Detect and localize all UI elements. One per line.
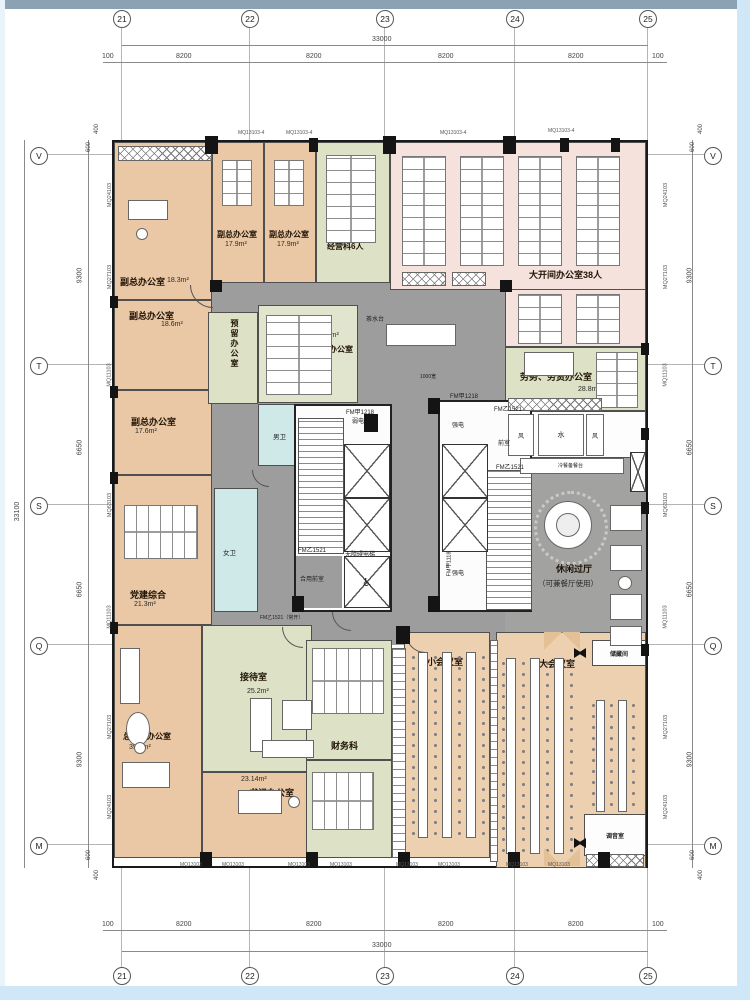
dim-edge: 100 [652,53,664,60]
movable-partition [490,640,498,862]
desk-cluster [274,160,304,206]
wall-code: MQ24103 [663,795,669,819]
column [396,626,410,644]
axis-bubble-22-top: 22 [241,10,259,28]
fire-door-label: FM乙1521 [494,404,522,413]
grid-line [47,844,112,845]
grid-line [647,27,648,140]
room-label: 党建综合 [130,588,166,601]
anteroom-label: 前室 [498,438,510,447]
sofa [610,545,642,571]
axis-bubble-24-top: 24 [506,10,524,28]
chair-row [568,658,573,854]
grid-line [648,644,704,645]
wall-code: MQ24103 [107,795,113,819]
dim-line [103,62,667,63]
chair [288,796,300,808]
room-label: 接待室 [240,670,267,683]
wall-code: MQ63103 [107,493,113,517]
column [598,852,610,868]
dim-edge: 600 [86,850,92,860]
room-vice-office-5: 副总办公室 17.6m² [114,390,212,475]
chair-row [630,700,635,812]
chair-row [480,652,486,838]
axis-bubble-25-bottom: 25 [639,967,657,985]
room-label: 储藏间 [610,649,628,658]
grid-line [121,868,122,967]
axis-bubble-S-left: S [30,497,48,515]
grid-line [47,154,112,155]
dim-edge: 400 [94,124,100,134]
room-label: 财务科 [331,739,358,752]
dim-line [122,951,648,952]
chair-row [590,700,595,812]
desk-cluster [326,155,376,243]
dim-line [103,930,667,931]
axis-bubble-21-bottom: 21 [113,967,131,985]
column [641,644,649,656]
desk-cluster [402,156,446,266]
room-area: 17.9m² [277,241,299,248]
dim-line [24,140,25,868]
dim-edge: 400 [94,870,100,880]
dim-line [88,140,89,868]
elevator-shaft [442,498,488,552]
tea-station-label: 茶水台 [366,314,384,323]
column [641,343,649,355]
column [500,280,512,292]
desk-cluster [576,294,620,344]
shaft-label: 水 [558,430,565,440]
dim-seg-left: 6650 [76,440,83,456]
axis-bubble-S-right: S [704,497,722,515]
column [210,280,222,292]
window-bench [402,272,446,286]
dim-edge: 100 [102,53,114,60]
room-label: 大开间办公室38人 [529,268,602,281]
desk [128,200,168,220]
right-frame-band [737,0,750,1000]
wall-code: MQ24103 [107,183,113,207]
column [428,596,440,612]
column [428,398,440,414]
dim-seg: 8200 [438,921,454,928]
wall-code: MQ13103 [396,862,418,868]
dim-edge: 400 [698,870,704,880]
wall-code: MQ13103 [506,862,528,868]
axis-bubble-Q-left: Q [30,637,48,655]
grid-line [249,868,250,967]
wall-code: MQ13103-4 [440,130,466,136]
axis-bubble-T-right: T [704,357,722,375]
dim-seg-left: 6650 [76,582,83,598]
dim-seg-left: 9300 [76,268,83,284]
axis-bubble-M-left: M [30,837,48,855]
dim-seg-left: 9300 [76,752,83,768]
dim-edge: 600 [86,142,92,152]
dim-seg: 8200 [568,53,584,60]
axis-bubble-21-top: 21 [113,10,131,28]
axis-bubble-Q-right: Q [704,637,722,655]
dim-edge: 600 [690,850,696,860]
wardrobe-cabinets [118,146,212,161]
room-area: 23.14m² [241,776,267,783]
axis-bubble-23-bottom: 23 [376,967,394,985]
room-label: 副总办公室 [269,229,309,240]
grid-line [249,27,250,140]
room-area: 17.6m² [135,428,157,435]
column [383,136,396,154]
axis-bubble-23-top: 23 [376,10,394,28]
grid-line [648,364,704,365]
desk-cluster [596,352,638,408]
width-note: 1000宽 [420,373,436,380]
dim-seg-right: 9300 [686,752,693,768]
fire-door-label: FM甲1118 [444,552,452,577]
top-frame-band [0,0,750,9]
room-vice-office-4: 副总办公室 18.6m² [114,300,212,390]
counter [586,854,644,867]
column [611,138,620,152]
elevator-shaft [442,444,488,498]
service-shaft [630,452,646,492]
desk-cluster [518,156,562,266]
grid-line [648,504,704,505]
room-sound-control: 调音室 [584,814,646,856]
dim-seg-right: 9300 [686,268,693,284]
conference-table [596,700,605,812]
dim-seg-right: 6650 [686,440,693,456]
wall-code: MQ27103 [663,715,669,739]
dim-seg: 8200 [438,53,454,60]
chair-row [608,700,613,812]
side-table [618,576,632,590]
desk-cluster [460,156,504,266]
tea-counter [386,324,456,346]
accessible-elevator: ♿ [344,556,390,608]
desk-cluster [266,315,332,395]
dim-edge: 600 [690,142,696,152]
room-area: 18.3m² [167,277,189,284]
axis-bubble-M-right: M [704,837,722,855]
dim-edge: 100 [652,921,664,928]
wall-code: MQ11103 [107,605,113,628]
conference-table [442,652,452,838]
sofa [610,626,642,646]
room-area: 18.6m² [161,321,183,328]
room-reserved-office: 预留办公室 [208,312,258,404]
grid-line [648,154,704,155]
axis-bubble-25-top: 25 [639,10,657,28]
chair-row [500,658,505,854]
grid-line [384,868,385,967]
floor-plan-sheet: 21 22 23 24 25 21 22 23 24 25 V T S Q M … [0,0,750,1000]
wall-code: MQ13103 [548,862,570,868]
buffet-counter-label: 冷餐备餐台 [558,462,583,469]
column [503,136,516,154]
accessible-elevator-label: 无障碍电梯 [345,549,375,558]
conference-table [554,658,564,854]
grid-line [514,27,515,140]
axis-bubble-24-bottom: 24 [506,967,524,985]
chair [136,228,148,240]
wall-code: MQ13103 [330,862,352,868]
conference-table [618,700,627,812]
dim-total-bottom: 33000 [372,942,391,949]
dim-seg: 8200 [176,921,192,928]
column [309,138,318,152]
column [560,138,569,152]
coffee-table [282,700,312,730]
room-area: 25.2m² [247,688,269,695]
meeting-table [124,505,198,559]
chair [134,742,146,754]
desk-cluster [312,648,384,714]
axis-bubble-V-right: V [704,147,722,165]
wall-code: MQ13103 [288,862,310,868]
bottom-frame-band [0,986,750,1000]
wall-code: MQ24103 [663,183,669,207]
dim-line [122,45,648,46]
dim-seg: 8200 [306,53,322,60]
window-bench [452,272,486,286]
column [110,386,118,398]
air-shaft: 风 [586,414,604,456]
water-shaft: 水 [538,414,584,456]
fire-door-label: FM乙1521 [496,462,524,471]
grid-line [384,27,385,140]
conference-table [506,658,516,854]
wall-code: MQ13103-4 [286,130,312,136]
grid-line [121,27,122,140]
desk-cluster [222,160,252,206]
round-table-center [556,513,580,537]
left-frame-band [0,0,5,1000]
air-shaft: 风 [508,414,534,456]
wall-code: MQ27103 [107,265,113,289]
chair-row [520,658,525,854]
room-label: 副总办公室 [120,275,165,288]
wall-code: MQ13103 [222,862,244,868]
wall-code: MQ63103 [663,493,669,517]
sofa [262,740,314,758]
dim-edge: 400 [698,124,704,134]
room-area: 17.9m² [225,241,247,248]
wall-code: MQ27103 [107,715,113,739]
column [110,472,118,484]
wall-code: MQ13103-4 [238,130,264,136]
dim-seg: 8200 [568,921,584,928]
sofa [610,594,642,620]
shared-anteroom-label: 合用前室 [300,574,324,583]
room-vice-office-1: 副总办公室 18.3m² [114,142,212,300]
strong-power-label: 强电 [452,568,464,577]
room-label: 副总办公室 [131,415,176,428]
room-secretary: 23.14m² 书记办公室 [202,772,312,858]
wall-code: MQ13103-4 [548,128,574,134]
column [641,502,649,514]
grid-line [648,844,704,845]
chair-row [432,652,438,838]
desk-cluster [312,772,374,830]
elevator-shaft [344,498,390,552]
chair-row [544,658,549,854]
room-label: 男卫 [273,431,286,441]
dim-seg: 8200 [176,53,192,60]
grid-line [47,364,112,365]
axis-bubble-T-left: T [30,357,48,375]
room-area: 21.3m² [134,601,156,608]
strong-power-label: 强电 [452,420,464,429]
grid-line [514,868,515,967]
sofa [524,352,574,376]
room-label: 副总办公室 [217,229,257,240]
fire-door-label: FM甲1218 [450,391,478,400]
desk-cluster [576,156,620,266]
desk [238,790,282,814]
column [641,428,649,440]
dim-total-top: 33000 [372,36,391,43]
dim-seg-right: 6650 [686,582,693,598]
conference-table [418,652,428,838]
column [292,596,304,612]
weak-power-label: 弱电 [352,416,364,425]
dim-seg: 8200 [306,921,322,928]
desk-cluster [518,294,562,344]
room-label: 调音室 [606,831,624,840]
room-label: 预留办公室 [229,319,240,369]
wall-code: MQ27103 [663,265,669,289]
wall-code: MQ11103 [663,605,669,628]
stair-west [298,418,344,554]
axis-bubble-22-bottom: 22 [241,967,259,985]
fire-door-label: FM乙1521 [298,545,326,554]
dim-edge: 100 [102,921,114,928]
lounge-chair [126,712,150,746]
column [205,136,218,154]
room-label: 女卫 [223,547,236,557]
wall-code: MQ11103 [663,363,669,386]
grid-line [47,504,112,505]
room-sublabel: （可兼餐厅使用） [538,578,598,589]
column [110,296,118,308]
av-wall [392,648,406,858]
wall-code: MQ13103 [438,862,460,868]
chair-row [456,652,462,838]
wall-code: MQ13103 [180,862,202,868]
shaft-label: 风 [592,431,598,440]
grid-line [647,868,648,967]
wall-code: MQ11103 [107,363,113,386]
sofa [610,505,642,531]
conference-table [466,652,476,838]
fire-door-label: FM乙1521（常开） [260,614,303,621]
desk [122,762,170,788]
stair-east [486,470,532,610]
sofa [120,648,140,704]
dim-total-left: 33100 [14,502,21,521]
chair-row [410,652,416,838]
grid-line [47,644,112,645]
room-womens-toilet: 女卫 [214,488,258,612]
elevator-shaft [344,444,390,498]
shaft-label: 风 [518,431,524,440]
axis-bubble-V-left: V [30,147,48,165]
window-bench [508,398,602,411]
fire-door-label: FM甲1218 [346,407,374,416]
column [364,414,378,432]
conference-table [530,658,540,854]
